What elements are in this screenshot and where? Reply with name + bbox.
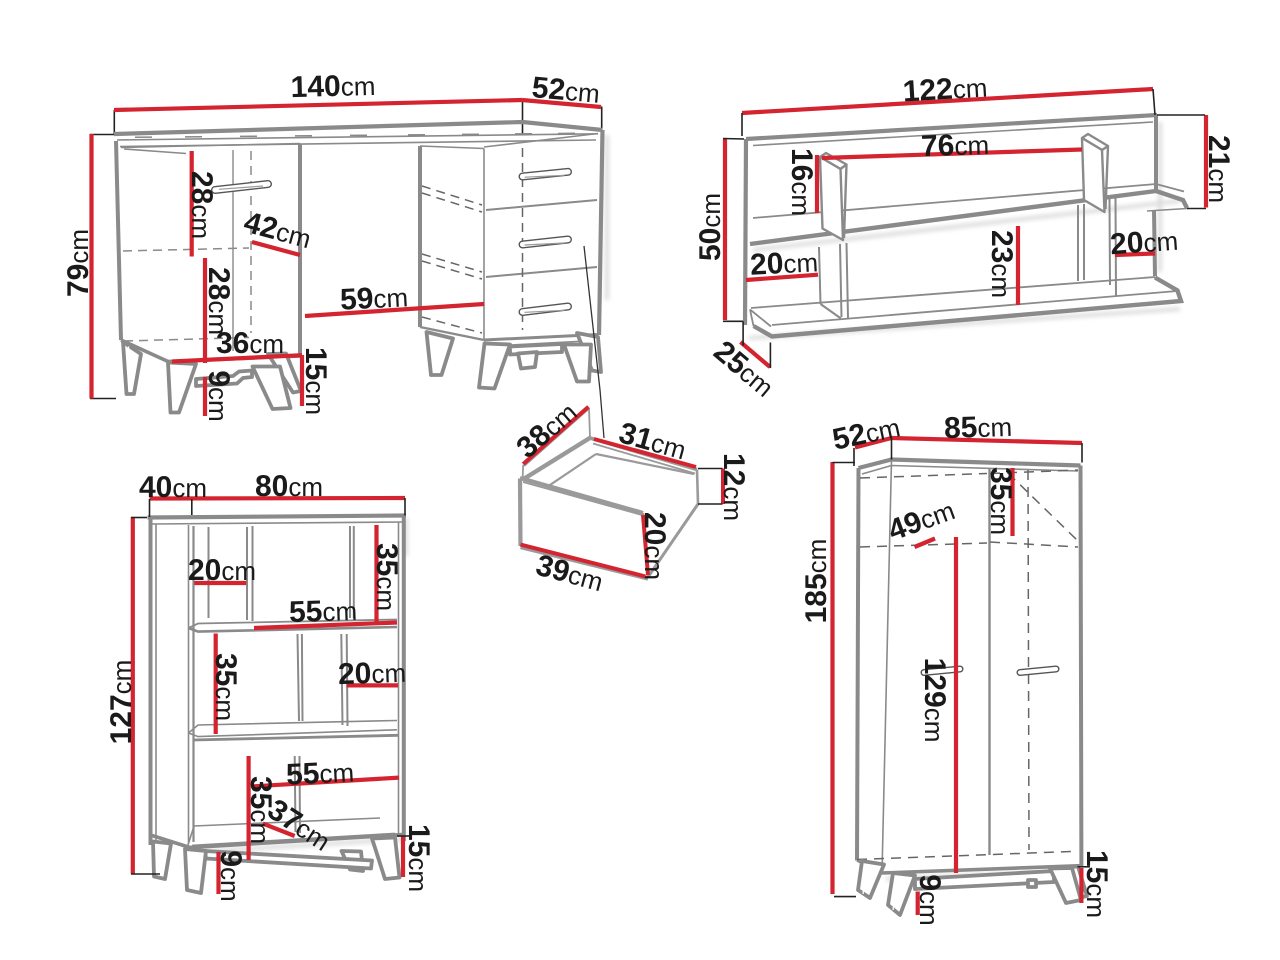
svg-text:20cm: 20cm	[749, 245, 819, 282]
svg-text:23cm: 23cm	[985, 230, 1018, 298]
svg-text:9cm: 9cm	[202, 370, 235, 421]
svg-text:20cm: 20cm	[1109, 224, 1179, 262]
svg-text:15cm: 15cm	[402, 824, 435, 892]
svg-text:127cm: 127cm	[105, 660, 138, 745]
svg-text:20cm: 20cm	[337, 656, 406, 691]
svg-text:122cm: 122cm	[902, 71, 989, 109]
svg-text:35cm: 35cm	[984, 467, 1017, 535]
svg-text:80cm: 80cm	[255, 470, 323, 503]
svg-text:28cm: 28cm	[202, 267, 235, 335]
svg-text:129cm: 129cm	[918, 658, 951, 743]
svg-text:35cm: 35cm	[370, 543, 403, 611]
svg-text:9cm: 9cm	[214, 850, 247, 901]
svg-text:55cm: 55cm	[285, 755, 355, 792]
svg-text:79cm: 79cm	[62, 229, 95, 297]
svg-text:185cm: 185cm	[800, 539, 833, 624]
svg-text:15cm: 15cm	[1080, 850, 1113, 918]
svg-text:28cm: 28cm	[185, 171, 218, 239]
svg-text:20cm: 20cm	[188, 554, 256, 587]
svg-text:36cm: 36cm	[216, 327, 284, 360]
svg-text:140cm: 140cm	[290, 69, 376, 104]
svg-text:20cm: 20cm	[638, 512, 671, 580]
svg-text:59cm: 59cm	[339, 280, 409, 317]
svg-text:16cm: 16cm	[785, 148, 818, 216]
svg-text:12cm: 12cm	[717, 453, 750, 521]
svg-text:76cm: 76cm	[920, 128, 989, 163]
svg-text:85cm: 85cm	[943, 410, 1012, 445]
svg-text:40cm: 40cm	[139, 471, 207, 504]
svg-text:21cm: 21cm	[1202, 135, 1235, 203]
svg-text:50cm: 50cm	[694, 193, 727, 261]
svg-text:35cm: 35cm	[209, 653, 242, 721]
svg-text:55cm: 55cm	[288, 594, 357, 629]
svg-text:9cm: 9cm	[913, 874, 946, 925]
svg-text:15cm: 15cm	[299, 347, 332, 415]
